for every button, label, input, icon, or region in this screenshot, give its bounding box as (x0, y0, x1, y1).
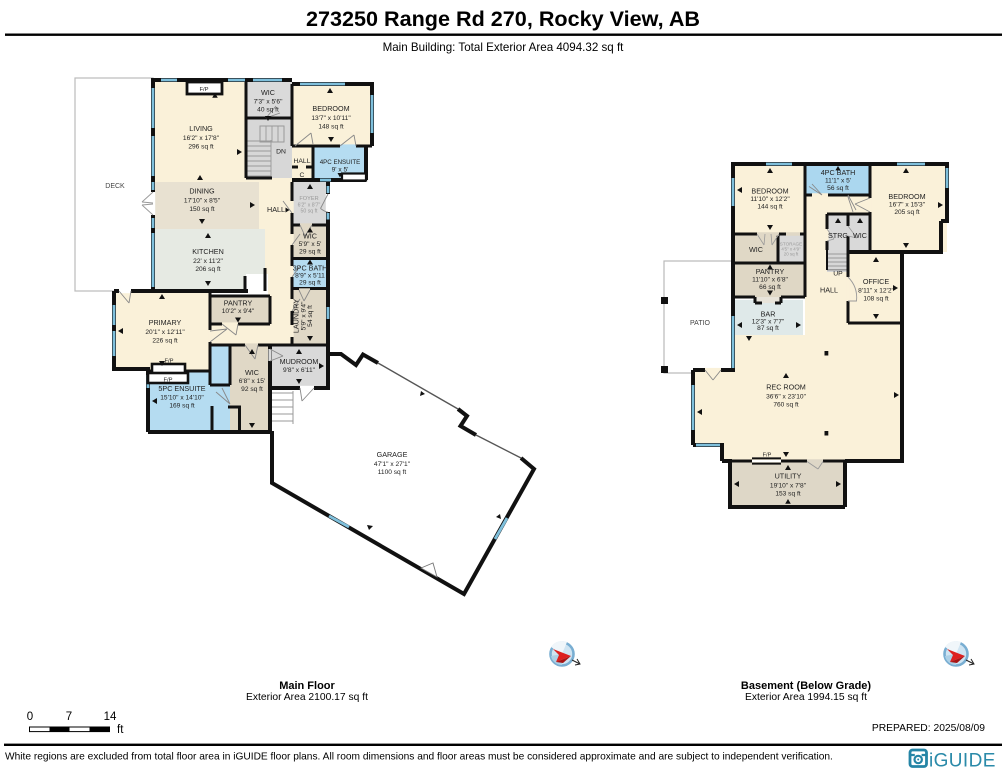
svg-text:GARAGE: GARAGE (377, 450, 408, 459)
svg-text:87 sq ft: 87 sq ft (757, 325, 779, 332)
svg-text:PREPARED: 2025/08/09: PREPARED: 2025/08/09 (872, 723, 985, 734)
svg-text:UTILITY: UTILITY (775, 472, 802, 481)
svg-text:54 sq ft: 54 sq ft (307, 305, 314, 327)
svg-text:PATIO: PATIO (690, 320, 711, 327)
svg-text:11'10" x 6'8": 11'10" x 6'8" (752, 277, 788, 284)
svg-text:169 sq ft: 169 sq ft (169, 403, 194, 410)
svg-text:0: 0 (27, 711, 33, 723)
svg-text:Exterior Area 1994.15 sq ft: Exterior Area 1994.15 sq ft (745, 692, 867, 703)
svg-text:10'2" x 9'4": 10'2" x 9'4" (222, 308, 255, 315)
svg-text:11'10" x 12'2": 11'10" x 12'2" (750, 196, 790, 203)
svg-text:153 sq ft: 153 sq ft (775, 491, 800, 498)
svg-text:OFFICE: OFFICE (863, 277, 890, 286)
svg-text:9' x 5': 9' x 5' (332, 167, 349, 174)
svg-text:DINING: DINING (189, 187, 215, 196)
svg-text:108 sq ft: 108 sq ft (863, 296, 888, 303)
svg-text:29 sq ft: 29 sq ft (299, 280, 321, 287)
svg-text:8'11" x 12'2": 8'11" x 12'2" (858, 288, 894, 295)
svg-text:66 sq ft: 66 sq ft (759, 284, 781, 291)
svg-text:296 sq ft: 296 sq ft (188, 144, 213, 151)
svg-text:9'8" x 6'11": 9'8" x 6'11" (283, 367, 316, 374)
svg-text:WIC: WIC (245, 368, 259, 377)
svg-text:4PC ENSUITE: 4PC ENSUITE (320, 159, 361, 166)
svg-text:ft: ft (117, 724, 124, 736)
svg-text:White regions are excluded fro: White regions are excluded from total fl… (5, 752, 833, 763)
svg-text:6'8" x 15': 6'8" x 15' (239, 378, 266, 385)
svg-text:92 sq ft: 92 sq ft (241, 386, 263, 393)
svg-text:22' x 11'2": 22' x 11'2" (193, 258, 223, 265)
svg-text:5PC ENSUITE: 5PC ENSUITE (158, 384, 205, 393)
svg-text:F/P: F/P (164, 359, 173, 365)
svg-text:29 sq ft: 29 sq ft (299, 249, 321, 256)
svg-text:148 sq ft: 148 sq ft (318, 124, 343, 131)
svg-text:Basement (Below Grade): Basement (Below Grade) (741, 680, 872, 692)
svg-text:WIC: WIC (853, 231, 867, 240)
svg-text:56 sq ft: 56 sq ft (827, 185, 849, 192)
svg-text:7'3" x 5'6": 7'3" x 5'6" (254, 99, 283, 106)
svg-text:16'2" x 17'8": 16'2" x 17'8" (183, 135, 220, 142)
svg-text:BEDROOM: BEDROOM (888, 192, 925, 201)
svg-text:205 sq ft: 205 sq ft (894, 209, 919, 216)
svg-text:BEDROOM: BEDROOM (312, 104, 349, 113)
svg-text:HALL: HALL (820, 286, 838, 295)
svg-text:HALL: HALL (267, 205, 285, 214)
svg-text:14: 14 (104, 711, 117, 723)
svg-text:40 sq ft: 40 sq ft (257, 107, 279, 114)
svg-text:760 sq ft: 760 sq ft (773, 402, 798, 409)
svg-text:11'1" x 5': 11'1" x 5' (825, 178, 851, 185)
svg-text:UP: UP (833, 271, 843, 278)
svg-text:36'6" x 23'10": 36'6" x 23'10" (766, 394, 806, 401)
svg-text:Main Floor: Main Floor (279, 680, 335, 692)
svg-text:47'1" x 27'1": 47'1" x 27'1" (374, 461, 411, 468)
svg-text:LAUNDRY: LAUNDRY (292, 299, 301, 333)
svg-text:13'7" x 10'11": 13'7" x 10'11" (311, 115, 351, 122)
svg-text:WIC: WIC (261, 88, 275, 97)
svg-text:KITCHEN: KITCHEN (192, 247, 224, 256)
svg-text:19'10" x 7'8": 19'10" x 7'8" (770, 483, 807, 490)
svg-text:20 sq ft: 20 sq ft (784, 252, 799, 257)
svg-text:206 sq ft: 206 sq ft (195, 266, 220, 273)
svg-text:F/P: F/P (163, 378, 172, 384)
svg-text:DN: DN (276, 149, 286, 156)
svg-text:iGUIDE: iGUIDE (929, 751, 996, 768)
svg-text:FOYER: FOYER (299, 196, 318, 202)
svg-text:WIC: WIC (303, 232, 317, 241)
svg-text:273250 Range Rd 270, Rocky Vie: 273250 Range Rd 270, Rocky View, AB (306, 6, 700, 31)
svg-text:BEDROOM: BEDROOM (751, 187, 788, 196)
svg-text:PRIMARY: PRIMARY (149, 318, 182, 327)
svg-text:MUDROOM: MUDROOM (280, 357, 319, 366)
svg-text:17'10" x 8'5": 17'10" x 8'5" (184, 198, 221, 205)
svg-text:150 sq ft: 150 sq ft (189, 206, 214, 213)
svg-text:Exterior Area 2100.17 sq ft: Exterior Area 2100.17 sq ft (246, 692, 368, 703)
svg-text:144 sq ft: 144 sq ft (757, 204, 782, 211)
svg-text:50 sq ft: 50 sq ft (300, 209, 318, 215)
svg-text:C: C (300, 172, 305, 179)
svg-text:8'9" x 5'11: 8'9" x 5'11 (295, 273, 325, 280)
svg-text:F/P: F/P (199, 87, 208, 93)
svg-text:WIC: WIC (749, 245, 763, 254)
svg-text:5'9" x 5': 5'9" x 5' (299, 241, 322, 248)
svg-text:HALL: HALL (293, 158, 310, 165)
svg-text:16'7" x 15'3": 16'7" x 15'3" (889, 202, 926, 209)
svg-text:3PC BATH: 3PC BATH (293, 264, 328, 273)
svg-text:STRG: STRG (828, 231, 848, 240)
svg-text:15'10" x 14'10": 15'10" x 14'10" (160, 395, 204, 402)
svg-text:7: 7 (66, 711, 72, 723)
svg-text:BAR: BAR (761, 310, 776, 319)
svg-text:1100 sq ft: 1100 sq ft (378, 469, 407, 476)
svg-text:DECK: DECK (105, 183, 125, 190)
svg-text:REC ROOM: REC ROOM (766, 383, 806, 392)
svg-text:LIVING: LIVING (189, 124, 213, 133)
svg-text:PANTRY: PANTRY (224, 299, 253, 308)
svg-text:226 sq ft: 226 sq ft (152, 338, 177, 345)
svg-text:F/P: F/P (763, 453, 772, 459)
svg-text:Main Building: Total Exterior: Main Building: Total Exterior Area 4094.… (383, 41, 625, 54)
svg-text:20'1" x 12'11": 20'1" x 12'11" (145, 329, 185, 336)
